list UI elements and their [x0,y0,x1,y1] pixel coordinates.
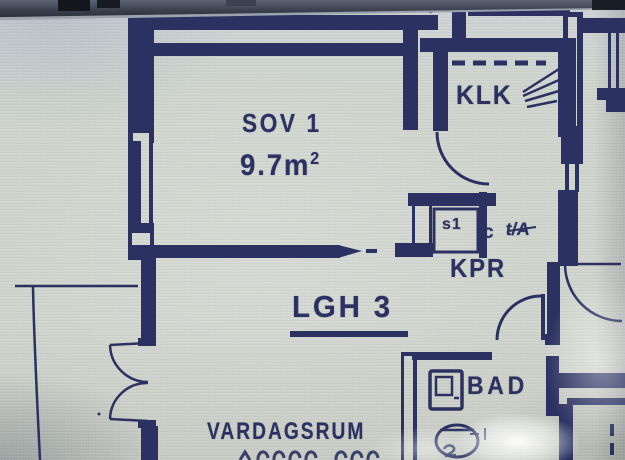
room-area-sov1: 9.7m2 [240,150,321,181]
wall-klk-left [433,52,448,131]
walls [128,0,625,460]
bezel-mark [97,0,120,8]
klk-shelf-hatch [523,69,559,107]
bezel-mark [226,0,256,6]
wall-divider-sov1 [152,245,340,258]
fixture-label-s1: s1 [442,217,462,233]
lgh3-underline [290,331,408,337]
bezel-mark [58,0,90,11]
room-area-sov1-sup: 2 [310,148,321,168]
room-label-sov1: SOV 1 [242,110,322,136]
wall-klk-top [420,38,576,52]
room-label-bad: BAD [467,374,528,399]
bad-door-leaf [541,294,545,340]
room-area-sov1-value: 9.7m [240,149,310,182]
wall-left-lower [141,258,156,346]
wall-bad-top [412,352,492,360]
balcony-rail-lines [15,286,138,460]
toilet-symbol [436,425,485,457]
entrance-door-arc [565,264,622,321]
wall-sov1-right [403,30,418,130]
wall-tick [610,443,614,455]
floorplan-photo: SOV 1 9.7m2 KLK KPR LGH 3 BAD VARDAGSRUM… [0,0,625,460]
apartment-label-lgh3: LGH 3 [292,291,393,322]
partial-text-strokes [240,445,456,460]
wall-left-upper [128,12,154,133]
paper-speck [98,413,101,416]
klk-door-arc [437,132,489,184]
wall-tick [610,424,614,436]
room-label-klk: KLK [456,82,513,109]
bad-door-arc [497,296,541,340]
balcony-double-door [110,343,148,421]
floorplan-drawing [0,0,625,460]
fixture-label-c: c [483,223,494,242]
washing-machine-symbol [430,371,462,409]
bezel-mark [592,0,625,10]
wall-top-exterior [148,15,438,30]
wall-right-mid [558,190,578,266]
room-label-kpr: KPR [450,255,506,281]
room-label-vardagsrum: VARDAGSRUM [207,420,365,444]
fixture-label-ta: t/A [505,220,531,238]
wall-sov1-top [150,43,418,56]
